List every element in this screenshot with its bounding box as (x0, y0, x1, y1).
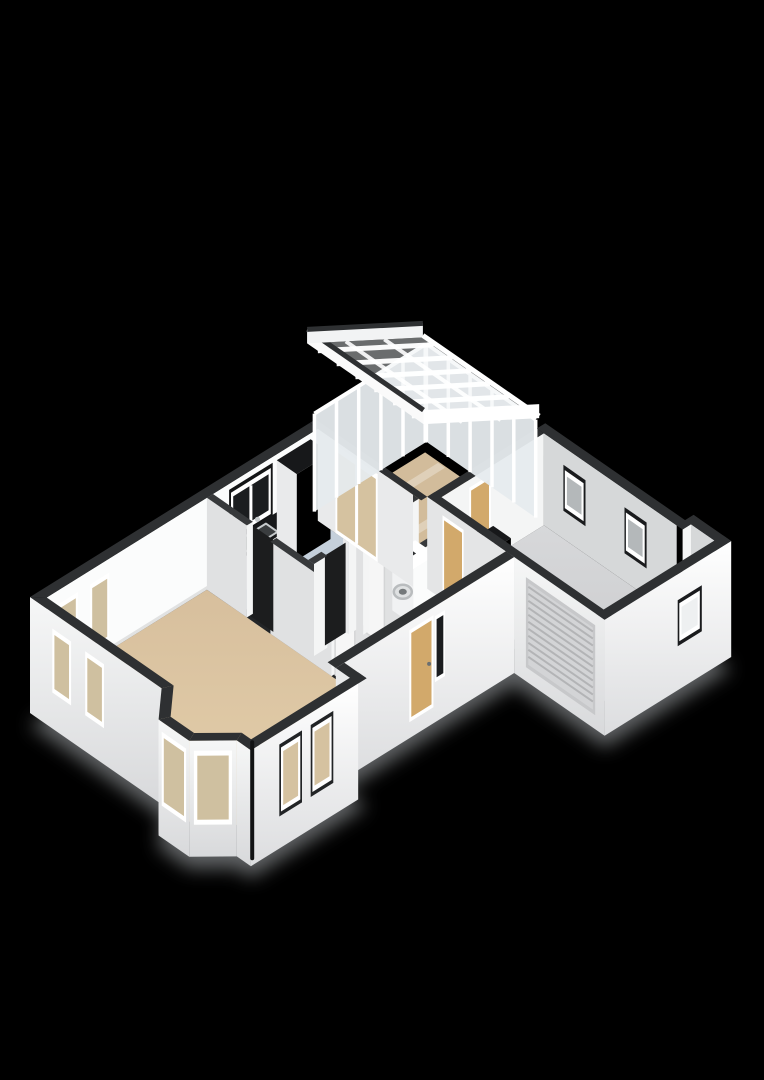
kitchen-hall-doorway-dark (325, 543, 346, 646)
living-se-window-1-glass (283, 742, 298, 805)
floorplan-canvas (0, 0, 764, 1080)
front-door (411, 620, 431, 717)
washing-machine-door-glass (399, 589, 407, 595)
partition-gap-end (247, 522, 253, 618)
sw-wall-face-2 (237, 740, 251, 866)
living-sw-window-2-glass (87, 658, 102, 722)
utility-sw-wall-face (356, 538, 363, 635)
front-door-handle (427, 662, 431, 666)
bay-window-glass (197, 756, 228, 820)
living-se-window-2-glass (315, 722, 330, 785)
front-door-sidelight-glass (437, 615, 444, 677)
kitchen-doorway-dark (250, 524, 273, 632)
floorplan-3d-render (0, 0, 764, 1080)
bay-wall-cap (189, 733, 242, 741)
living-sw-window-1-glass (54, 635, 69, 699)
kitchen-faucet (255, 517, 260, 522)
